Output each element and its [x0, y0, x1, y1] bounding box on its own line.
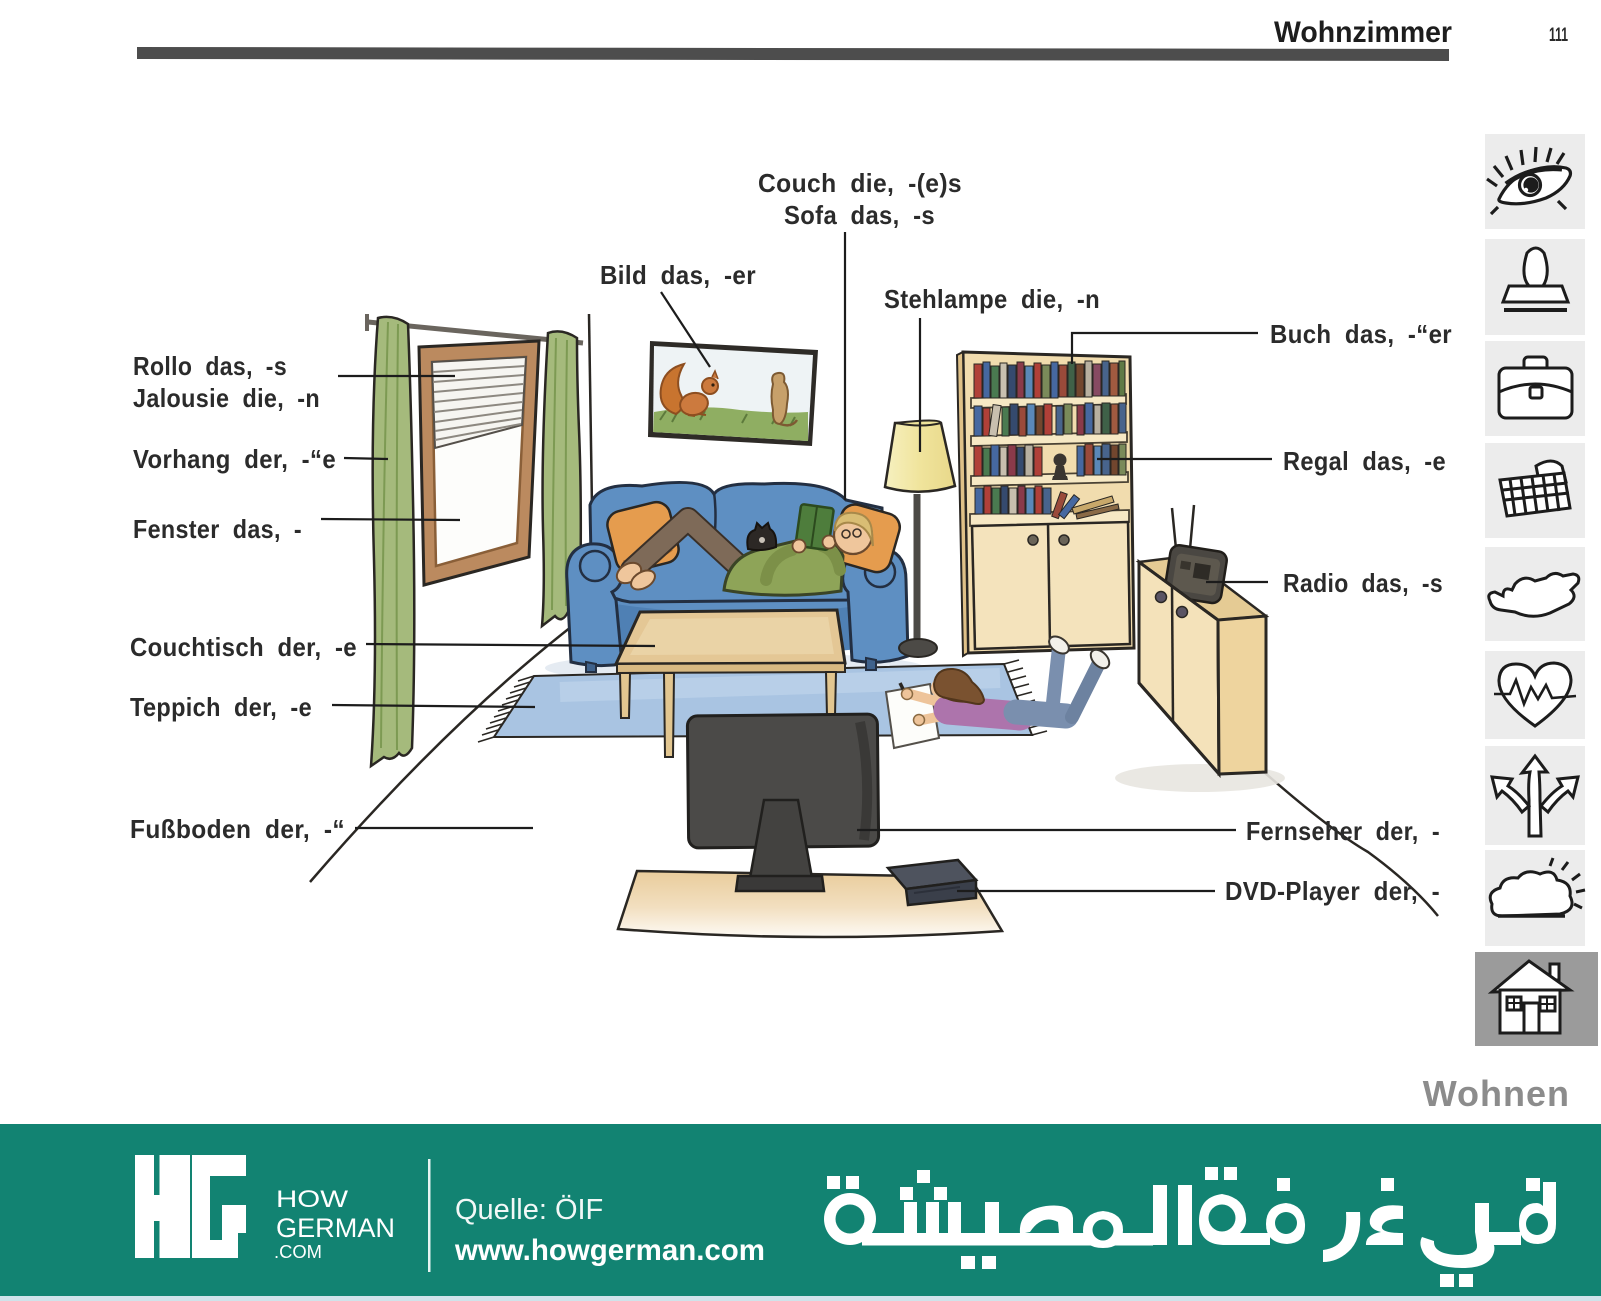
svg-text:Radio das, -s: Radio das, -s [1283, 568, 1443, 598]
svg-text:Couchtisch der, -e: Couchtisch der, -e [130, 632, 357, 662]
svg-text:Rollo das, -s: Rollo das, -s [133, 351, 287, 381]
svg-text:Teppich der, -e: Teppich der, -e [130, 692, 312, 722]
svg-text:Quelle: ÖIF: Quelle: ÖIF [455, 1194, 603, 1226]
svg-text:Stehlampe die, -n: Stehlampe die, -n [884, 284, 1100, 314]
svg-text:Vorhang der, -“e: Vorhang der, -“e [133, 444, 336, 474]
svg-text:Sofa das, -s: Sofa das, -s [784, 200, 935, 230]
svg-text:Couch die, -(e)s: Couch die, -(e)s [758, 168, 962, 198]
svg-text:111: 111 [1549, 25, 1568, 46]
svg-text:Wohnen: Wohnen [1423, 1073, 1570, 1114]
svg-text:Bild das, -er: Bild das, -er [600, 260, 756, 290]
svg-text:Fernseher der, -: Fernseher der, - [1246, 816, 1440, 846]
svg-text:Wohnzimmer: Wohnzimmer [1274, 16, 1452, 49]
svg-text:www.howgerman.com: www.howgerman.com [454, 1234, 765, 1267]
svg-text:Jalousie die, -n: Jalousie die, -n [133, 383, 320, 413]
svg-text:Buch das, -“er: Buch das, -“er [1270, 319, 1452, 349]
svg-text:DVD-Player der, -: DVD-Player der, - [1225, 876, 1440, 906]
svg-text:Fenster das, -: Fenster das, - [133, 514, 302, 544]
svg-text:Fußboden der, -“: Fußboden der, -“ [130, 814, 345, 844]
svg-text:GERMAN: GERMAN [276, 1213, 395, 1243]
svg-text:Regal das, -e: Regal das, -e [1283, 446, 1446, 476]
svg-text:HOW: HOW [276, 1186, 348, 1213]
svg-text:.COM: .COM [274, 1242, 322, 1262]
